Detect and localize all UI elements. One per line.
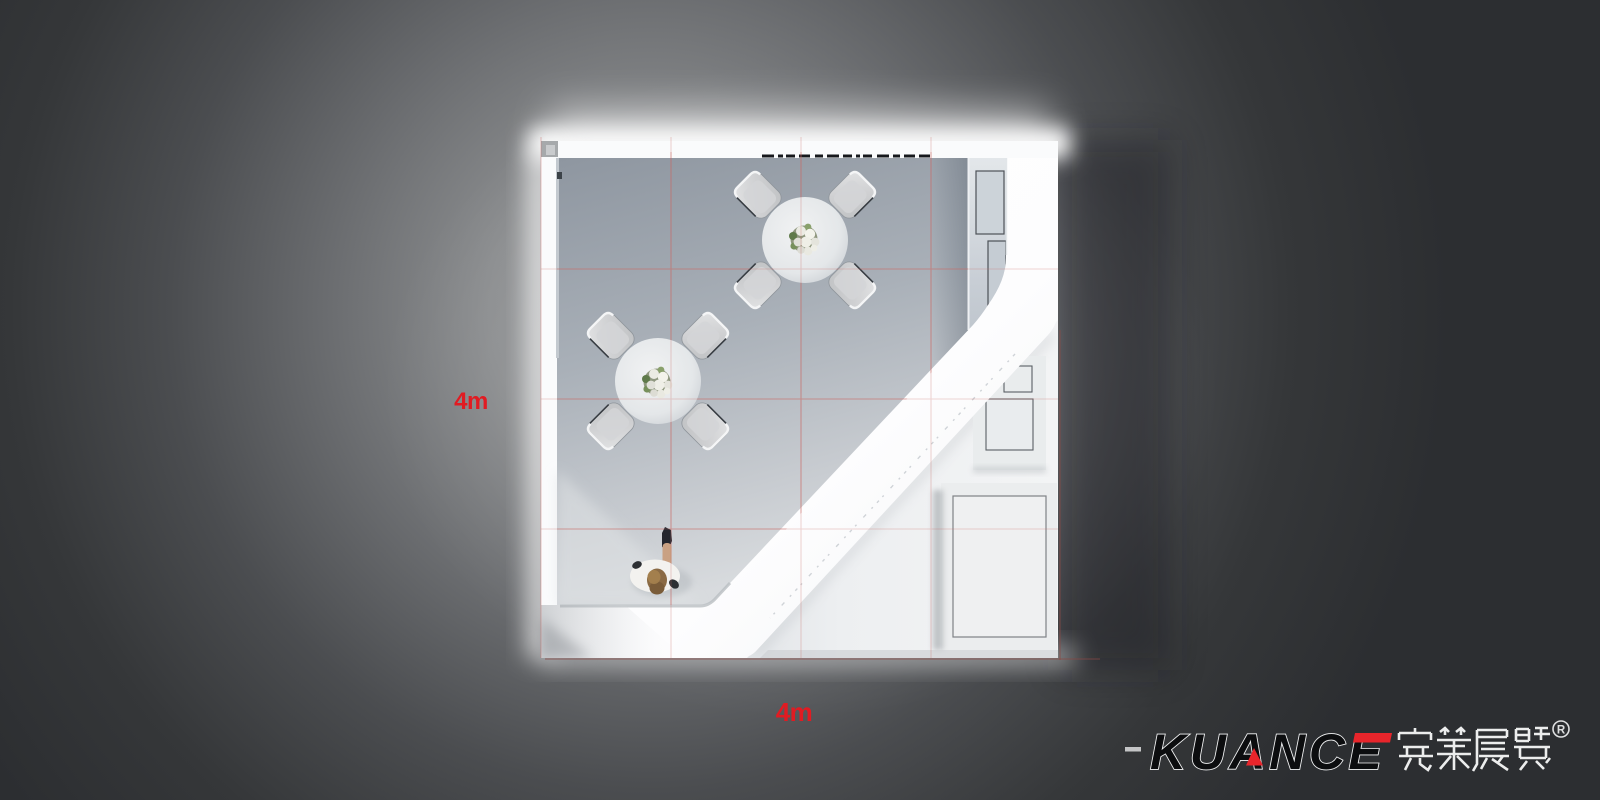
svg-text:4m: 4m	[454, 388, 488, 415]
svg-text:4m: 4m	[776, 697, 813, 727]
svg-text:KUANCE: KUANCE	[1150, 724, 1386, 780]
svg-text:R: R	[1557, 725, 1566, 737]
